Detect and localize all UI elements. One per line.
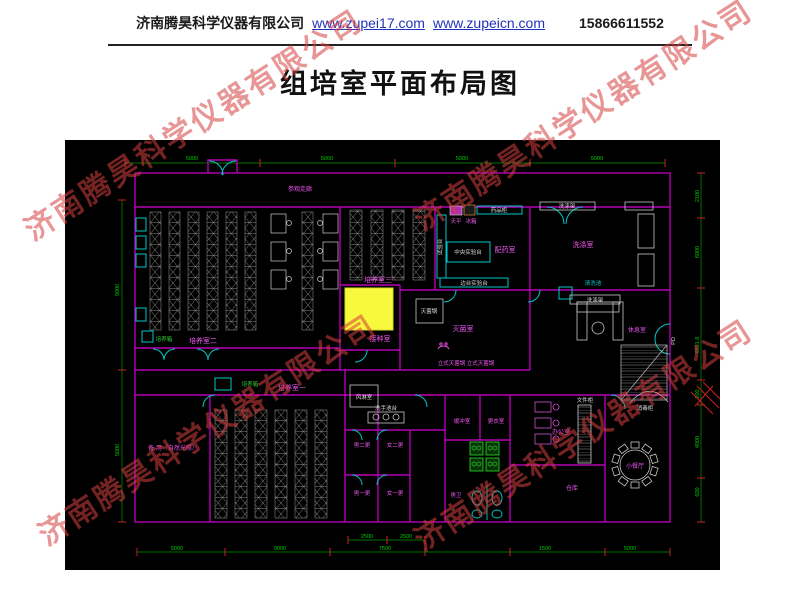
label-sterilizer-pot: 灭菌锅 (421, 307, 438, 315)
label-dressing: 更衣室 (488, 417, 505, 425)
label-prep: 配药室 (495, 245, 516, 254)
label-file-cabinet: 文件柜 (577, 396, 594, 404)
balance-box (450, 206, 462, 215)
dim-bottom-2: 9000 (274, 546, 286, 552)
dim-bottom-5: 7500 (379, 546, 391, 552)
label-door-pd: PD (671, 337, 677, 345)
label-buffer: 缓冲室 (454, 417, 471, 425)
label-culture2: 培养室二 (189, 336, 217, 345)
dim-left-1: 9000 (115, 284, 121, 296)
floor-plan: 5000 5000 5000 5000 9000 5000 2100 6000 … (65, 140, 720, 570)
dimension-labels: 5000 5000 5000 5000 9000 5000 2100 6000 … (115, 156, 701, 552)
dim-top-3: 5000 (456, 156, 468, 162)
stairs (621, 345, 667, 400)
label-med-cabinet: 药品柜 (491, 206, 508, 214)
dim-bottom-1: 5000 (171, 546, 183, 552)
label-incubator2: 培养箱 (242, 380, 259, 388)
page-header: 济南腾昊科学仪器有限公司 www.zupei17.com www.zupeicn… (0, 0, 800, 46)
dim-right-2: 6000 (695, 246, 701, 258)
label-fridge: 冰箱 (465, 217, 477, 225)
label-lounge: 休息室 (628, 326, 646, 334)
label-incubator: 培养箱 (156, 335, 173, 343)
office-desks (535, 402, 559, 444)
dim-bottom-6: 1500 (539, 546, 551, 552)
label-hand-sink: 洗手池台 (375, 404, 398, 412)
dim-top-1: 5000 (186, 156, 198, 162)
label-chg-m2: 男二更 (354, 442, 371, 449)
dim-bottom-3: 2500 (361, 534, 373, 540)
phone-number: 15866611552 (579, 15, 664, 31)
pass-window-icon (438, 343, 449, 349)
dim-right-1: 2100 (695, 190, 701, 202)
dim-right-5: 4000 (695, 436, 701, 448)
link-zupei17[interactable]: www.zupei17.com (312, 15, 425, 31)
label-dining: 小餐厅 (626, 462, 644, 470)
company-name: 济南腾昊科学仪器有限公司 (136, 13, 304, 33)
label-culture3: 培养室三 (364, 275, 392, 284)
dim-right-6: 600 (695, 487, 701, 496)
label-spare: 备 用（自然光照） (148, 444, 198, 452)
label-washing: 洗涤室 (573, 240, 594, 249)
label-sink: 清洗池 (585, 279, 602, 287)
dim-top-2: 5000 (321, 156, 333, 162)
label-wash-rack-bottom: 洗涤架 (587, 296, 604, 304)
dim-left-2: 5000 (115, 444, 121, 456)
label-inoculation: 接种室 (370, 334, 391, 343)
label-side-bench: 边台实验台 (460, 279, 488, 287)
label-air-shower: 风淋室 (356, 393, 373, 401)
label-vertical-sterilizers: 立式灭菌锅 立式灭菌锅 (438, 359, 495, 367)
label-storage: 仓库 (566, 484, 578, 492)
dimension-ticks (118, 159, 705, 556)
label-corridor: 参观走廊 (288, 185, 312, 193)
label-balance: 天平 (450, 218, 462, 225)
fridge-box (464, 205, 475, 215)
cad-drawing-panel: 5000 5000 5000 5000 9000 5000 2100 6000 … (65, 140, 720, 570)
dim-right-3: 9021.6 (695, 337, 701, 354)
label-wc-m: 男卫 (450, 492, 462, 499)
link-zupeicn[interactable]: www.zupeicn.com (433, 15, 545, 31)
highlight-region (345, 288, 393, 330)
label-side-bench-v: 试验台 (436, 238, 444, 255)
label-culture1: 培养室一 (278, 383, 306, 392)
culture-racks (150, 210, 425, 518)
dim-bottom-4: 2500 (400, 534, 412, 540)
label-chg-f1: 女一更 (387, 489, 404, 497)
label-central-bench: 中央实验台 (454, 248, 482, 256)
label-office: 办公室 (552, 428, 570, 436)
label-chg-m1: 男一更 (354, 490, 371, 497)
label-disinfect-cabinet: 消毒柜 (637, 404, 654, 412)
page-title: 组培室平面布局图 (0, 62, 800, 101)
header-divider (108, 44, 692, 46)
label-chg-f2: 女二更 (387, 441, 404, 449)
label-sterilization: 灭菌室 (453, 324, 474, 333)
toilet-stalls (470, 442, 502, 520)
dim-bottom-7: 5000 (624, 546, 636, 552)
dim-top-4: 5000 (591, 156, 603, 162)
label-wash-rack-top: 洗涤架 (559, 202, 576, 210)
